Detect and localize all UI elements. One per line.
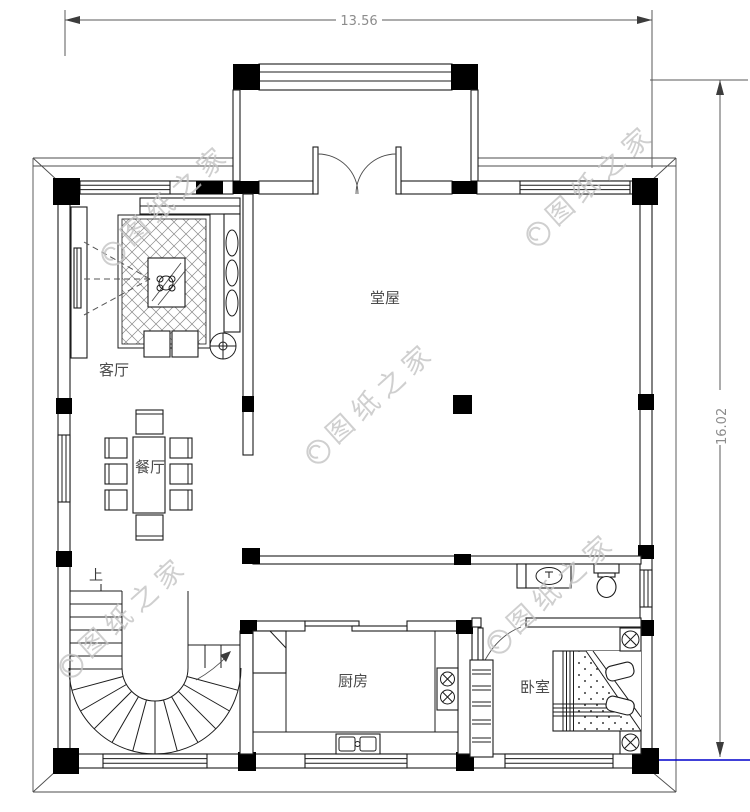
wall [253, 621, 305, 631]
wall-living-hall [243, 194, 253, 455]
label-kitchen: 厨房 [338, 672, 368, 690]
dimension-width-value: 13.56 [340, 14, 377, 29]
stairs-up-label: 上 [89, 568, 103, 584]
column [233, 64, 260, 90]
floor-plan-sheet: 13.56 16.02 [0, 0, 750, 812]
window [305, 754, 407, 768]
wall [640, 194, 652, 754]
stool [144, 331, 170, 357]
label-living-room: 客厅 [99, 361, 129, 379]
dimension-height-value: 16.02 [715, 408, 730, 445]
double-bed [553, 651, 641, 731]
porch-wall-right [471, 90, 478, 181]
column [238, 752, 256, 771]
side-fan [210, 333, 236, 359]
tv-cabinet [71, 207, 87, 358]
floor-plan-drawing: 13.56 16.02 [0, 0, 750, 812]
column [451, 64, 478, 90]
stove [437, 668, 458, 710]
label-main-hall: 堂屋 [370, 289, 400, 307]
column [56, 398, 72, 414]
column [454, 554, 471, 565]
window [103, 754, 207, 768]
fridge [253, 631, 286, 673]
column [242, 396, 254, 412]
column [242, 548, 260, 564]
column [452, 181, 477, 194]
column [456, 620, 473, 634]
porch-wall-left [233, 90, 240, 181]
wall [407, 621, 458, 631]
column [53, 748, 79, 774]
stool [172, 331, 198, 357]
label-bedroom: 卧室 [520, 678, 550, 696]
wall-bathroom-west [517, 564, 526, 588]
wardrobe [470, 660, 493, 757]
column-freestanding [453, 395, 472, 414]
column [53, 178, 80, 205]
column [233, 181, 259, 194]
window [640, 570, 652, 607]
wall [259, 181, 313, 194]
wall [401, 181, 452, 194]
label-dining-room: 餐厅 [135, 458, 165, 476]
nightstand [620, 731, 641, 754]
column [638, 394, 654, 410]
wall-stub [472, 618, 481, 627]
column [632, 178, 658, 205]
column [56, 551, 72, 567]
wall-kitchen-west [240, 631, 253, 754]
kitchen-sink [336, 734, 380, 754]
porch-railing [259, 64, 452, 90]
window [58, 435, 70, 502]
nightstand [620, 628, 641, 651]
window [505, 754, 613, 768]
